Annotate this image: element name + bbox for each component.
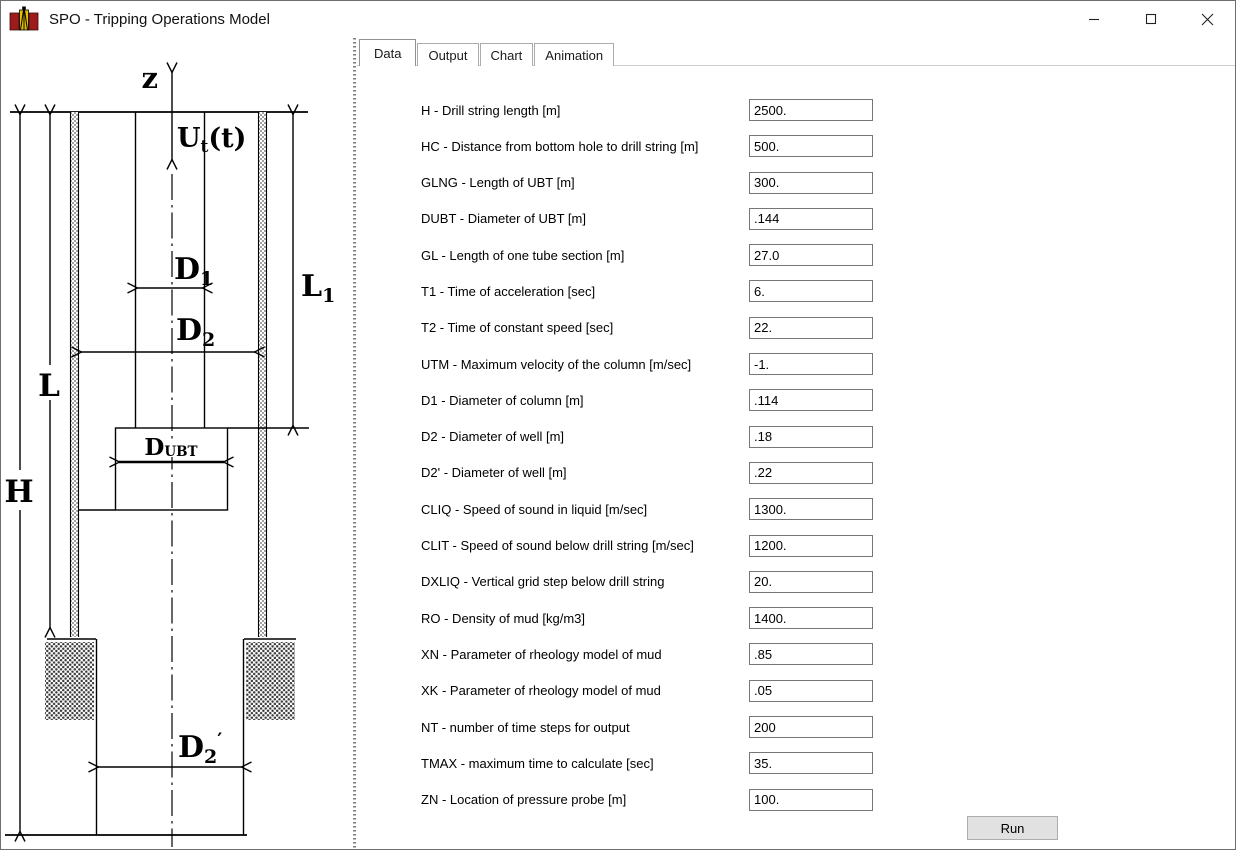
casing-shoe-left (45, 642, 94, 720)
label-h: H (4, 474, 33, 510)
form-row: T2 - Time of constant speed [sec] (421, 317, 873, 339)
form-row: DUBT - Diameter of UBT [m] (421, 208, 873, 230)
field-label: CLIQ - Speed of sound in liquid [m/sec] (421, 502, 749, 517)
main-panel: Data Output Chart Animation H - Drill st… (357, 38, 1236, 850)
form-row: NT - number of time steps for output (421, 716, 873, 738)
field-input[interactable] (749, 317, 873, 339)
field-input[interactable] (749, 789, 873, 811)
field-input[interactable] (749, 462, 873, 484)
field-label: ZN - Location of pressure probe [m] (421, 792, 749, 807)
field-label: TMAX - maximum time to calculate [sec] (421, 756, 749, 771)
field-input[interactable] (749, 571, 873, 593)
well-wall-right (259, 112, 267, 637)
field-label: DXLIQ - Vertical grid step below drill s… (421, 574, 749, 589)
field-input[interactable] (749, 498, 873, 520)
window-title: SPO - Tripping Operations Model (49, 11, 270, 28)
form-row: TMAX - maximum time to calculate [sec] (421, 752, 873, 774)
close-icon (1201, 13, 1214, 26)
tab-strip: Data Output Chart Animation (359, 39, 615, 66)
field-input[interactable] (749, 752, 873, 774)
field-input[interactable] (749, 389, 873, 411)
tab-label: Data (374, 46, 401, 61)
well-schematic: z Ut(t) D1 L1 D2 L DUBT H D2′ (0, 38, 352, 850)
tab-animation[interactable]: Animation (534, 43, 614, 66)
tab-output[interactable]: Output (417, 43, 478, 66)
form-rows: H - Drill string length [m] HC - Distanc… (421, 99, 873, 811)
form-row: GL - Length of one tube section [m] (421, 244, 873, 266)
form-row: CLIQ - Speed of sound in liquid [m/sec] (421, 498, 873, 520)
form-row: D1 - Diameter of column [m] (421, 389, 873, 411)
tab-label: Output (428, 48, 467, 63)
field-label: T1 - Time of acceleration [sec] (421, 284, 749, 299)
label-d1: D1 (174, 252, 213, 290)
close-button[interactable] (1179, 0, 1236, 38)
tab-label: Chart (491, 48, 523, 63)
label-d2: D2 (176, 313, 215, 351)
form-row: T1 - Time of acceleration [sec] (421, 280, 873, 302)
field-label: UTM - Maximum velocity of the column [m/… (421, 357, 749, 372)
form-row: ZN - Location of pressure probe [m] (421, 789, 873, 811)
field-label: NT - number of time steps for output (421, 720, 749, 735)
field-input[interactable] (749, 535, 873, 557)
field-label: XN - Parameter of rheology model of mud (421, 647, 749, 662)
form-row: D2' - Diameter of well [m] (421, 462, 873, 484)
label-dubt: DUBT (144, 434, 197, 461)
field-label: CLIT - Speed of sound below drill string… (421, 538, 749, 553)
form-row: UTM - Maximum velocity of the column [m/… (421, 353, 873, 375)
well-schematic-panel: z Ut(t) D1 L1 D2 L DUBT H D2′ (0, 38, 352, 850)
maximize-icon (1145, 13, 1157, 25)
well-wall-left (71, 112, 79, 637)
tab-chart[interactable]: Chart (480, 43, 534, 66)
field-label: D2' - Diameter of well [m] (421, 465, 749, 480)
field-label: RO - Density of mud [kg/m3] (421, 611, 749, 626)
field-label: HC - Distance from bottom hole to drill … (421, 139, 749, 154)
app-icon (9, 6, 39, 32)
field-input[interactable] (749, 353, 873, 375)
field-label: DUBT - Diameter of UBT [m] (421, 211, 749, 226)
field-label: T2 - Time of constant speed [sec] (421, 320, 749, 335)
tab-data[interactable]: Data (359, 39, 416, 66)
field-input[interactable] (749, 135, 873, 157)
field-input[interactable] (749, 244, 873, 266)
casing-shoe-right (246, 642, 295, 720)
field-input[interactable] (749, 172, 873, 194)
field-input[interactable] (749, 426, 873, 448)
title-bar: SPO - Tripping Operations Model (0, 0, 1236, 38)
field-label: D2 - Diameter of well [m] (421, 429, 749, 444)
label-l1: L1 (301, 269, 335, 307)
field-input[interactable] (749, 680, 873, 702)
field-label: XK - Parameter of rheology model of mud (421, 683, 749, 698)
field-input[interactable] (749, 99, 873, 121)
form-row: DXLIQ - Vertical grid step below drill s… (421, 571, 873, 593)
form-row: HC - Distance from bottom hole to drill … (421, 135, 873, 157)
form-row: XK - Parameter of rheology model of mud (421, 680, 873, 702)
field-label: D1 - Diameter of column [m] (421, 393, 749, 408)
label-d2prime: D2′ (178, 729, 222, 768)
field-label: GLNG - Length of UBT [m] (421, 175, 749, 190)
field-label: H - Drill string length [m] (421, 103, 749, 118)
form-row: XN - Parameter of rheology model of mud (421, 643, 873, 665)
label-z-axis: z (142, 61, 158, 95)
form-row: H - Drill string length [m] (421, 99, 873, 121)
label-l: L (38, 368, 60, 404)
maximize-button[interactable] (1122, 0, 1179, 38)
tab-label: Animation (545, 48, 603, 63)
field-input[interactable] (749, 607, 873, 629)
field-label: GL - Length of one tube section [m] (421, 248, 749, 263)
form-row: CLIT - Speed of sound below drill string… (421, 535, 873, 557)
field-input[interactable] (749, 208, 873, 230)
panel-splitter[interactable] (353, 38, 356, 850)
form-row: RO - Density of mud [kg/m3] (421, 607, 873, 629)
minimize-icon (1088, 13, 1100, 25)
field-input[interactable] (749, 643, 873, 665)
field-input[interactable] (749, 280, 873, 302)
form-row: D2 - Diameter of well [m] (421, 426, 873, 448)
run-button[interactable]: Run (967, 816, 1058, 840)
minimize-button[interactable] (1065, 0, 1122, 38)
form-row: GLNG - Length of UBT [m] (421, 172, 873, 194)
field-input[interactable] (749, 716, 873, 738)
label-velocity: Ut(t) (177, 123, 246, 157)
tab-page-data: H - Drill string length [m] HC - Distanc… (357, 65, 1236, 850)
